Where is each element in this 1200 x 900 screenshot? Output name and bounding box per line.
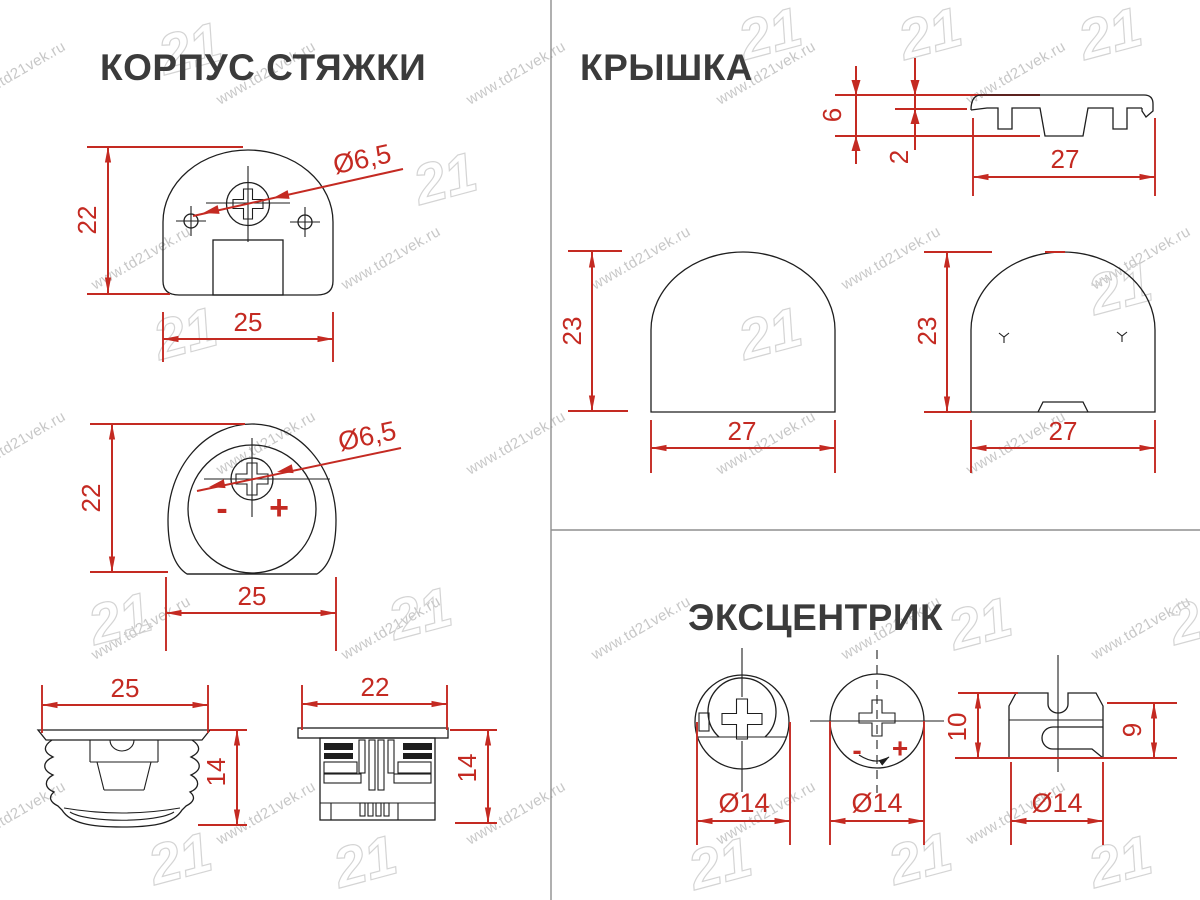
url-watermark: www.td21vek.ru [838, 223, 944, 294]
url-watermark: www.td21vek.ru [463, 408, 569, 479]
cam-groove [1042, 727, 1103, 758]
logo-watermark: 21 [326, 823, 403, 900]
logo-watermark: 21 [881, 820, 958, 897]
dim-height-body-label: 9 [1117, 723, 1147, 737]
url-watermark: www.td21vek.ru [88, 223, 194, 294]
url-watermark: www.td21vek.ru [588, 593, 694, 664]
dim-diameter-label: Ø14 [1031, 788, 1082, 818]
dim-width-label: 27 [1049, 416, 1078, 446]
plus-sign: + [269, 489, 289, 527]
dim-height-label: 22 [72, 206, 102, 235]
section-excentrik: ЭКСЦЕНТРИК Ø14 - + Ø14 [688, 597, 1177, 845]
logo-watermark: 21 [681, 825, 758, 900]
dim-width-label: 25 [111, 673, 140, 703]
dim-diameter-label: Ø14 [718, 788, 769, 818]
logo-watermark: 21 [381, 575, 458, 652]
kryshka-profile-view: 6 2 27 [817, 58, 1155, 196]
watermark-layer: www.td21vek.ruwww.td21vek.ruwww.td21vek.… [0, 0, 1200, 900]
latch-tab [1038, 402, 1088, 412]
url-watermark: www.td21vek.ru [0, 38, 69, 109]
excentrik-title: ЭКСЦЕНТРИК [688, 597, 943, 638]
korpus-front-view: 22 25 Ø6,5 [72, 138, 403, 362]
dim-width-label: 27 [1051, 144, 1080, 174]
dim-width-label: 25 [238, 581, 267, 611]
logo-watermark: 21 [141, 820, 218, 897]
logo-watermark: 21 [1081, 823, 1158, 900]
url-watermark: www.td21vek.ru [338, 223, 444, 294]
minus-sign: - [852, 735, 861, 766]
rotation-arrow [859, 755, 889, 761]
dim-height-label: 22 [76, 484, 106, 513]
url-watermark: www.td21vek.ru [213, 778, 319, 849]
dim-height-label: 23 [557, 317, 587, 346]
clip-mark [999, 333, 1009, 343]
url-watermark: www.td21vek.ru [463, 778, 569, 849]
spec-sheet: www.td21vek.ruwww.td21vek.ruwww.td21vek.… [0, 0, 1200, 900]
url-watermark: www.td21vek.ru [463, 38, 569, 109]
korpus-title: КОРПУС СТЯЖКИ [100, 47, 426, 88]
dim-thickness-label: 2 [884, 150, 914, 164]
korpus-side-view-a: 25 14 [38, 673, 247, 827]
url-watermark: www.td21vek.ru [588, 223, 694, 294]
dim-width-label: 27 [728, 416, 757, 446]
dim-height-total-label: 10 [942, 713, 972, 742]
url-watermark: www.td21vek.ru [963, 38, 1069, 109]
clip-mark [1117, 332, 1127, 342]
excentrik-top-open-view: - + Ø14 [810, 650, 944, 845]
dim-height-label: 14 [201, 758, 231, 787]
dim-width-label: 25 [234, 307, 263, 337]
plus-sign: + [892, 733, 908, 764]
cam-slot [699, 713, 709, 731]
dim-height-label: 23 [912, 317, 942, 346]
dim-diameter-label: Ø14 [851, 788, 902, 818]
logo-watermark: 21 [941, 585, 1018, 662]
minus-sign: - [216, 490, 227, 528]
dim-height-label: 14 [452, 754, 482, 783]
logo-watermark: 21 [81, 580, 158, 657]
dim-width-label: 22 [361, 672, 390, 702]
logo-watermark: 21 [146, 295, 223, 372]
korpus-side-view-b: 22 14 [298, 672, 497, 823]
drawing-canvas: www.td21vek.ruwww.td21vek.ruwww.td21vek.… [0, 0, 1200, 900]
logo-watermark: 21 [1071, 0, 1148, 72]
url-watermark: www.td21vek.ru [0, 408, 69, 479]
phillips-recess [722, 699, 762, 739]
url-watermark: www.td21vek.ru [0, 778, 69, 849]
logo-watermark: 21 [406, 140, 483, 217]
excentrik-side-view: 10 9 Ø14 [942, 655, 1177, 845]
logo-watermark: 21 [891, 0, 968, 72]
dim-height-label: 6 [817, 108, 847, 122]
logo-watermark: 21 [731, 295, 808, 372]
kryshka-title: КРЫШКА [580, 47, 753, 88]
